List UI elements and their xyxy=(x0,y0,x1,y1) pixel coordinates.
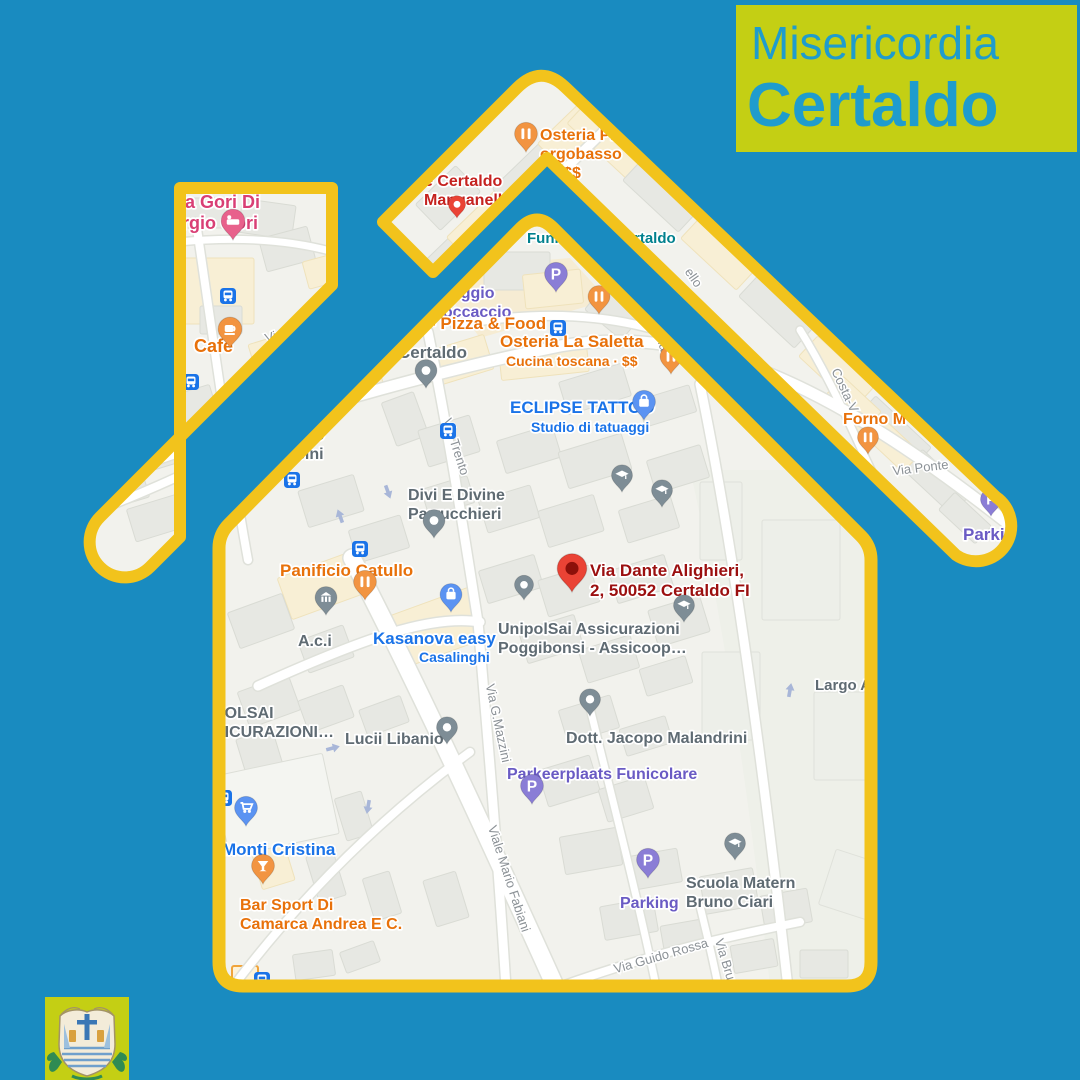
banner-title-line1: Misericordia xyxy=(751,17,999,69)
banner-title-line2: Certaldo xyxy=(747,71,998,140)
poster: Via Il GiugnoVia TrentoVia G.MazziniVial… xyxy=(0,0,1080,1080)
crest-logo xyxy=(45,997,129,1080)
banner: Misericordia Certaldo xyxy=(736,5,1077,152)
